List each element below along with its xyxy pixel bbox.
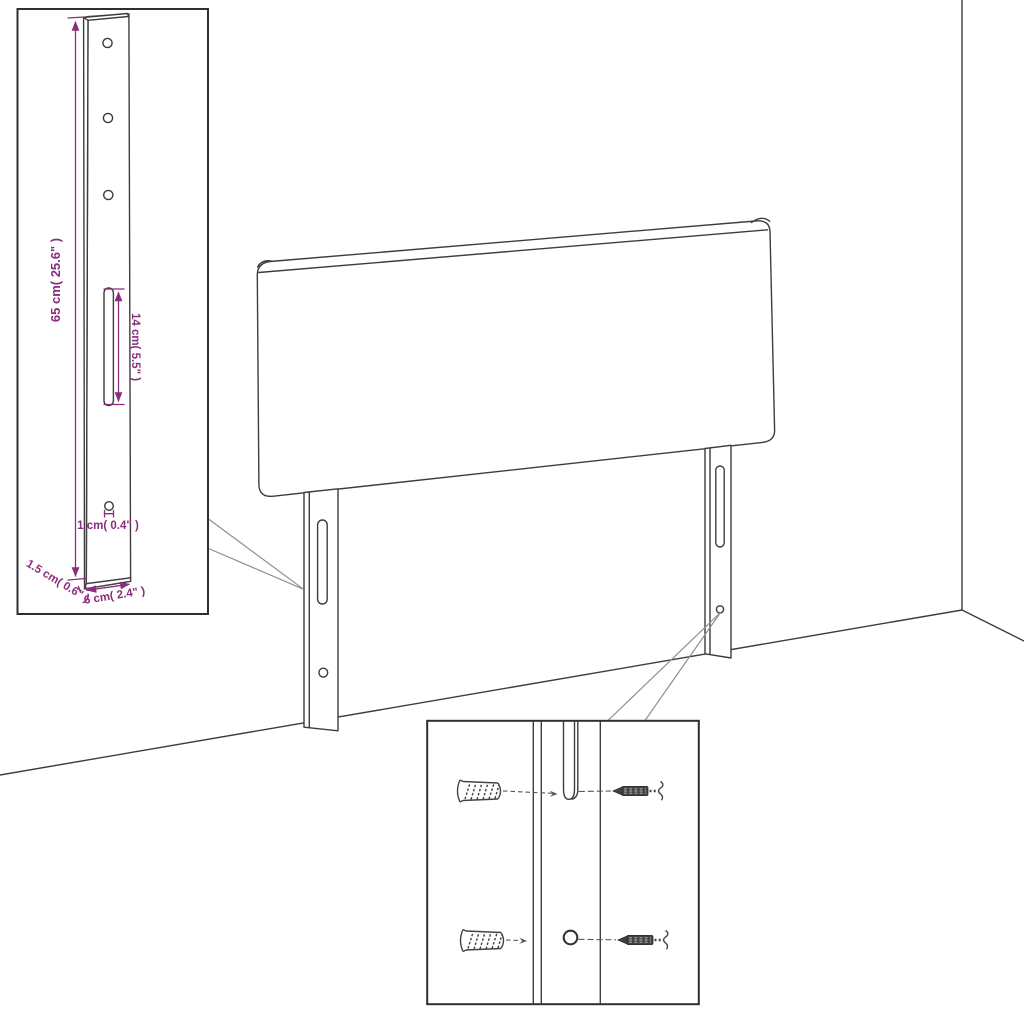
left-leg bbox=[304, 489, 338, 731]
leg-detail-inset: 65 cm( 25.6" ) 14 cm( 5.5" ) 1 cm( 0.4" … bbox=[18, 9, 209, 614]
mount-inset-pointer-right bbox=[645, 613, 721, 721]
right-leg bbox=[705, 445, 731, 658]
mounting-detail-inset bbox=[427, 721, 699, 1004]
mount-inset-pointer-left bbox=[608, 613, 721, 721]
dimension-height-label: 65 cm( 25.6" ) bbox=[48, 238, 63, 322]
leg-detail-drawing bbox=[84, 14, 131, 589]
diagram-canvas: 65 cm( 25.6" ) 14 cm( 5.5" ) 1 cm( 0.4" … bbox=[0, 0, 1024, 1024]
right-leg-outline bbox=[705, 445, 731, 658]
dimension-slot-label: 14 cm( 5.5" ) bbox=[129, 313, 141, 381]
leg-front-face bbox=[86, 14, 130, 584]
dimension-pin-hole-label: 1 cm( 0.4" ) bbox=[77, 520, 139, 532]
headboard-diagram: 65 cm( 25.6" ) 14 cm( 5.5" ) 1 cm( 0.4" … bbox=[0, 0, 1024, 1024]
headboard-panel bbox=[257, 218, 774, 496]
panel-outline bbox=[257, 221, 774, 497]
callout-lines bbox=[209, 519, 721, 721]
mount-hole bbox=[564, 931, 578, 945]
